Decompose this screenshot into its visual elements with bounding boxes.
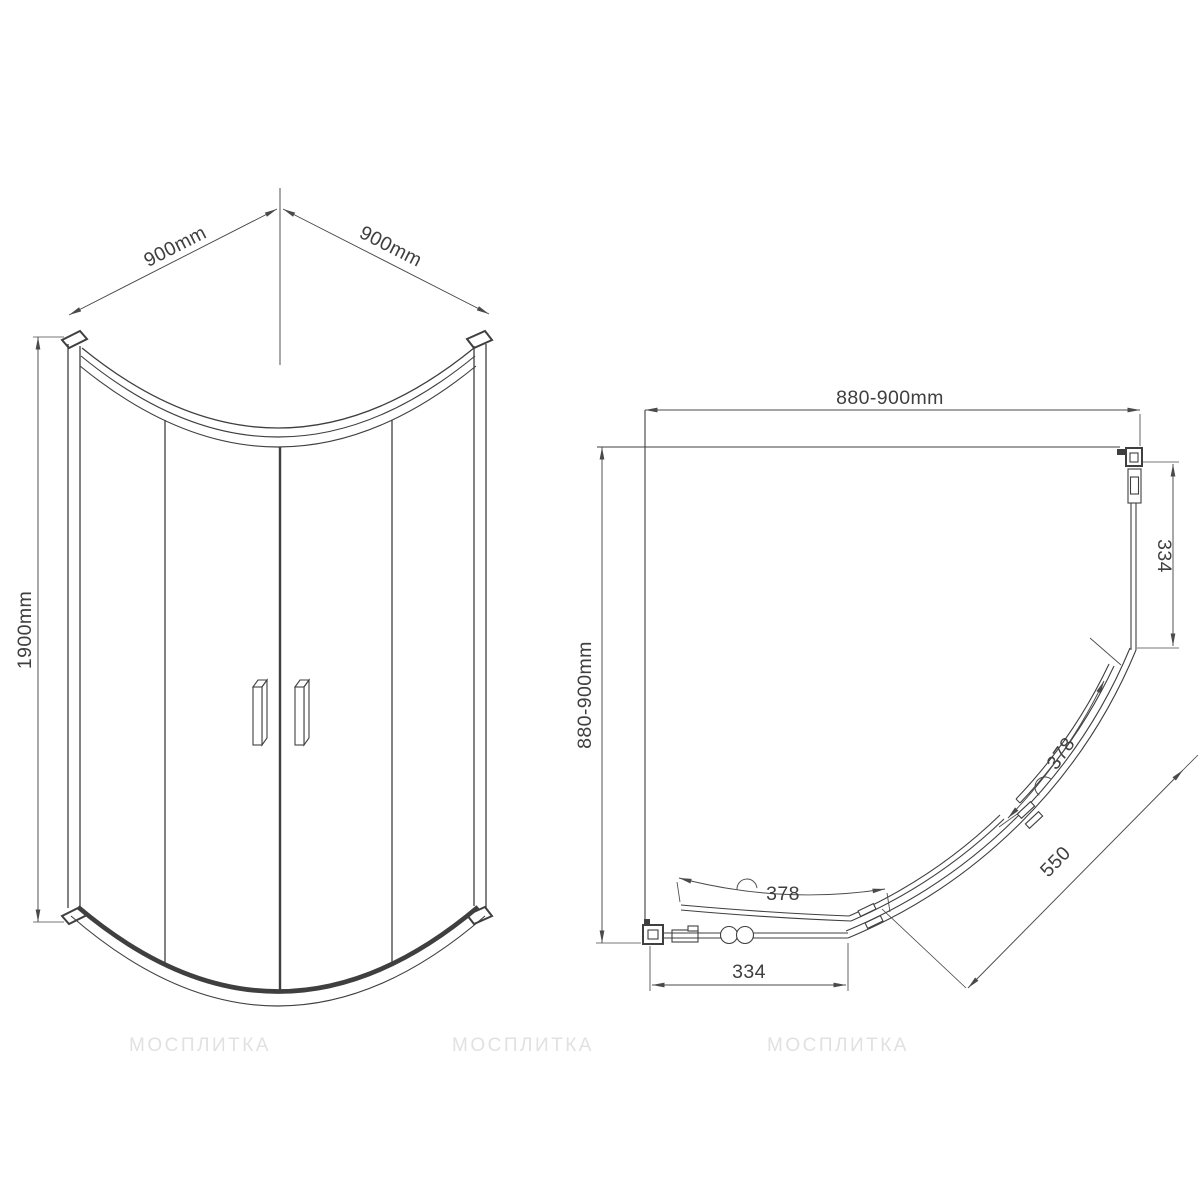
dimension-width-880-900: 880-900mm <box>645 387 1140 446</box>
curved-track-arcs <box>846 648 1136 938</box>
dim-1900-label: 1900mm <box>14 591 36 669</box>
door-rollers <box>721 927 754 944</box>
door-handle-right <box>295 680 309 745</box>
fixed-panel-right-glass <box>1131 503 1136 650</box>
dim-900-left-label: 900mm <box>140 222 210 272</box>
watermarks: МОСПЛИТКА МОСПЛИТКА МОСПЛИТКА <box>129 1035 909 1056</box>
watermark-left: МОСПЛИТКА <box>129 1035 271 1056</box>
watermark-right: МОСПЛИТКА <box>767 1035 909 1056</box>
dimension-334-right: 334 <box>1137 462 1179 648</box>
bottom-curved-rail <box>71 907 485 1006</box>
plan-view: 880-900mm 880-900mm <box>574 387 1198 991</box>
dim-378-lower-label: 378 <box>766 883 800 905</box>
sliding-door-lower <box>681 815 1004 928</box>
dim-depth-label: 880-900mm <box>574 641 596 749</box>
front-view: 900mm 900mm 1900mm <box>14 188 492 1006</box>
shower-enclosure-technical-drawing: 900mm 900mm 1900mm <box>0 0 1200 1200</box>
door-handle-left <box>253 680 267 745</box>
bottom-left-wall-profile <box>643 919 698 944</box>
top-right-wall-profile <box>1117 448 1142 503</box>
dimension-depth-880-900: 880-900mm <box>574 447 641 943</box>
watermark-center: МОСПЛИТКА <box>452 1035 594 1056</box>
dim-334-right-label: 334 <box>1153 539 1175 573</box>
drawing-canvas: 900mm 900mm 1900mm <box>0 0 1200 1200</box>
left-wall-profile <box>62 331 87 924</box>
dim-width-label: 880-900mm <box>836 387 944 409</box>
dim-378-upper-label: 378 <box>1042 733 1079 773</box>
glass-panel-edges <box>165 420 392 991</box>
top-curved-track <box>80 348 476 447</box>
dimension-900-right: 900mm <box>283 209 489 314</box>
dimension-334-bottom: 334 <box>650 943 848 991</box>
right-wall-profile <box>467 331 492 924</box>
dim-334-bottom-label: 334 <box>732 961 766 983</box>
dim-550-label: 550 <box>1036 842 1075 882</box>
dimension-378-upper: 378 <box>999 638 1121 827</box>
dimension-900-left: 900mm <box>69 209 277 315</box>
arc-length-symbol-lower <box>736 878 757 890</box>
dimension-1900-height: 1900mm <box>14 337 64 922</box>
